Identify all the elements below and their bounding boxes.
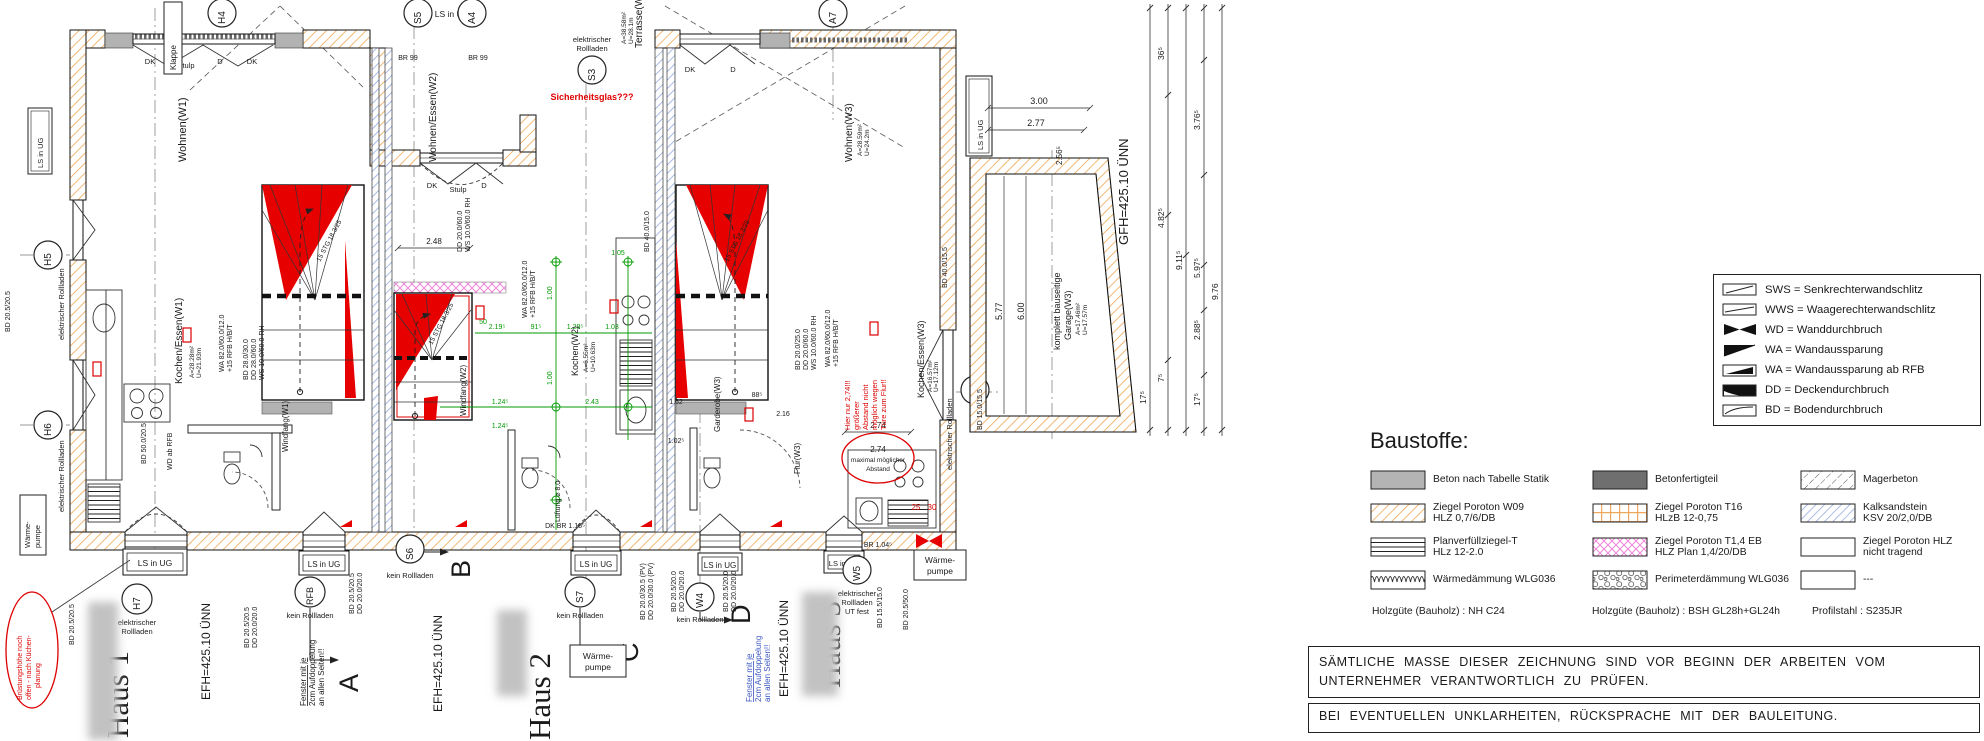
svg-text:RFB: RFB [305, 587, 315, 605]
svg-text:BD 15.5/15.0: BD 15.5/15.0 [877, 587, 884, 628]
poroton-hlz-swatch [1800, 537, 1856, 557]
garage-label: Garage(W3) [1063, 290, 1073, 340]
garage: LS in UG 3.00 2.77 2.56⁵ 5.77 6.00 GFH=4… [966, 76, 1136, 432]
svg-text:Rollladen: Rollladen [121, 627, 152, 636]
svg-text:DD 20.0/20.0: DD 20.0/20.0 [252, 607, 259, 648]
material-label: --- [1863, 574, 1873, 585]
holzguete-note: Holzgüte (Bauholz) : NH C24 [1372, 606, 1505, 617]
material-row: Perimeterdämmung WLG036 [1592, 570, 1789, 590]
material-label: Beton nach Tabelle Statik [1433, 474, 1549, 485]
ls-box-label: LS in UG [976, 119, 985, 150]
svg-text:17⁵: 17⁵ [1192, 393, 1202, 406]
legend-row: WD = Wanddurchbruch [1722, 322, 1980, 337]
svg-text:offen - nach Küchen-: offen - nach Küchen- [26, 634, 33, 700]
legend-label: WD = Wanddurchbruch [1765, 324, 1882, 336]
kalksandstein-swatch [1800, 503, 1856, 523]
room-area: U=10.63m [590, 342, 597, 372]
svg-text:2.88⁵: 2.88⁵ [1192, 320, 1202, 340]
room-label: Kochen/Essen(W3) [916, 320, 926, 398]
sws-icon [1722, 282, 1758, 297]
dd-icon [1722, 383, 1758, 398]
note-line: BEI EVENTUELLEN UNKLARHEITEN, RÜCKSPRACH… [1319, 709, 1838, 723]
svg-text:S7: S7 [575, 590, 586, 603]
room-label: Wohnen(W1) [177, 97, 189, 162]
material-label: Perimeterdämmung WLG036 [1655, 574, 1789, 585]
svg-text:Türe zum Flur!!: Türe zum Flur!! [879, 379, 888, 430]
garage-label: komplett bauseitige [1052, 272, 1062, 350]
ls-boxes [123, 549, 864, 575]
garage-gfh: GFH=425.10 ÜNN [1116, 138, 1131, 245]
code-label: +15 RFB H/B/T [530, 270, 537, 318]
room-label: Kochen(W2) [570, 326, 580, 376]
svg-text:BD 20.5/20.0: BD 20.5/20.0 [723, 571, 730, 612]
code-label: Lüftung ⌀ 8.0 [555, 481, 562, 522]
room-area: U=24.2m [864, 129, 871, 156]
haus1-stair: 15 STG 18.3/25 [262, 185, 364, 414]
svg-text:A4: A4 [467, 11, 478, 24]
dim-label: 5.77 [994, 302, 1004, 320]
svg-text:pumpe: pumpe [33, 525, 42, 548]
garage-area: A=17.46m² [1075, 302, 1082, 335]
poroton-t14eb-swatch [1592, 537, 1648, 557]
waermedaemmung-swatch [1370, 570, 1426, 590]
cloud-text: 2.74 [870, 445, 886, 454]
wa-icon [1722, 343, 1758, 358]
poroton-w09-swatch [1370, 503, 1426, 523]
svg-text:9.76: 9.76 [1210, 283, 1220, 300]
svg-text:elektrischer Rollladen: elektrischer Rollladen [57, 440, 66, 512]
room-area: U=17.12m [933, 362, 940, 392]
poroton-t16-swatch [1592, 503, 1648, 523]
code-label: BD 40.0/15.5 [942, 247, 949, 288]
svg-text:EFH=425.10 ÜNN: EFH=425.10 ÜNN [199, 603, 213, 700]
material-row: Beton nach Tabelle Statik [1370, 470, 1549, 490]
material-label: Betonfertigteil [1655, 474, 1718, 485]
svg-text:DD 20.0/20.0: DD 20.0/20.0 [731, 571, 738, 612]
material-label: KalksandsteinKSV 20/2,0/DB [1863, 502, 1932, 524]
bd-icon [1722, 403, 1758, 418]
window-label: D [217, 57, 223, 66]
room-area: A=6.55m² [583, 343, 590, 372]
dim-label: 1.62 [669, 399, 683, 406]
svg-text:H6: H6 [43, 423, 54, 436]
material-row: --- [1800, 570, 1873, 590]
window-label: Stulp [449, 185, 466, 194]
svg-text:BD 20.5/20.5: BD 20.5/20.5 [69, 604, 76, 645]
svg-text:A: A [334, 674, 364, 692]
svg-text:17⁵: 17⁵ [1138, 391, 1148, 404]
svg-text:Abstand nicht: Abstand nicht [861, 384, 870, 430]
dim-label: 6.00 [1016, 302, 1026, 320]
code-label: BD 50.0/20.5 [141, 423, 148, 464]
code-label: WA 82.0/60.0/12.0 [522, 261, 529, 318]
material-label: Wärmedämmung WLG036 [1433, 574, 1555, 585]
svg-text:pumpe: pumpe [585, 662, 611, 672]
material-row: Ziegel Poroton HLZnicht tragend [1800, 536, 1952, 558]
room-label: Kochen/Essen(W1) [174, 298, 185, 384]
svg-text:UT fest: UT fest [845, 607, 870, 616]
material-label: Ziegel Poroton W09HLZ 0,7/6/DB [1433, 502, 1524, 524]
fenster-note-2: Fenster mit je 2cm Aufdoppelung an allen… [745, 636, 772, 702]
dim-label: 2.48 [426, 237, 442, 246]
legend-label: DD = Deckendurchbruch [1765, 384, 1889, 396]
code-label: BD 40.0/15.0 [644, 211, 651, 252]
svg-text:1.05: 1.05 [611, 250, 625, 257]
legend-label: SWS = Senkrechterwandschlitz [1765, 284, 1923, 296]
green-dims: 2.19⁵ 91⁵ 1.28⁵ 1.03 50 1.00 1.00 1.24⁵ … [479, 250, 625, 430]
dim-label: 88⁵ [752, 392, 763, 399]
svg-text:an allen Seiten!!: an allen Seiten!! [317, 649, 326, 706]
cloud-text: Abstand [866, 466, 890, 473]
room-area: A=28.28m² [189, 345, 196, 378]
svg-text:BD 20.0/30.5 (PV): BD 20.0/30.5 (PV) [640, 563, 647, 620]
empty-swatch [1800, 570, 1856, 590]
code-label: DD 20.0/60.0 [803, 329, 810, 370]
room-label: Wohnen/Essen(W2) [428, 73, 439, 162]
svg-text:LS in UG: LS in UG [308, 560, 340, 569]
svg-text:BD 20.5/20.5: BD 20.5/20.5 [349, 573, 356, 614]
svg-text:LS in UG: LS in UG [580, 560, 612, 569]
symbol-legend: SWS = Senkrechterwandschlitz WWS = Waage… [1713, 274, 1981, 426]
svg-text:elektrischer Rollladen: elektrischer Rollladen [57, 268, 66, 340]
svg-text:91⁵: 91⁵ [531, 324, 542, 331]
svg-text:Wärme-: Wärme- [925, 555, 955, 565]
code-label: +15 RFB H/B/T [227, 324, 234, 372]
svg-text:4.82⁵: 4.82⁵ [1156, 208, 1166, 228]
code-label: BD 20.0/25.0 [795, 329, 802, 370]
svg-text:Rollladen: Rollladen [576, 44, 607, 53]
svg-text:1.00: 1.00 [547, 286, 554, 300]
haus1-interior [86, 290, 292, 522]
wws-icon [1722, 302, 1758, 317]
material-row: Magerbeton [1800, 470, 1918, 490]
svg-text:elektrischer: elektrischer [838, 589, 877, 598]
room-area: U=28.1m [628, 17, 635, 44]
material-row: Wärmedämmung WLG036 [1370, 570, 1555, 590]
code-label: WS 10.0/60.0 RH [259, 326, 266, 380]
window-label: DK [145, 57, 155, 66]
window-label: BR 1.04⁵ [864, 542, 892, 549]
svg-text:36⁵: 36⁵ [1156, 47, 1166, 60]
code-label: BD 20.5/20.5 [5, 291, 12, 332]
red-dim: 30 [928, 503, 937, 512]
svg-text:elektrischer: elektrischer [573, 35, 612, 44]
left-edge-items [28, 2, 182, 174]
room-area: U=21.93m [196, 348, 203, 378]
svg-text:planung: planung [35, 663, 42, 688]
code-label: WD ab RFB [167, 432, 174, 470]
legend-row: WWS = Waagerechterwandschlitz [1722, 302, 1980, 317]
svg-text:pumpe: pumpe [927, 566, 953, 576]
svg-text:7⁵: 7⁵ [1156, 374, 1166, 382]
general-note: SÄMTLICHE MASSE DIESER ZEICHNUNG SIND VO… [1308, 646, 1980, 698]
klappe-label: Klappe [169, 45, 178, 70]
magerbeton-swatch [1800, 470, 1856, 490]
wd-icon [1722, 322, 1758, 337]
betonfertigteil-swatch [1592, 470, 1648, 490]
svg-text:2cm Aufdoppelung: 2cm Aufdoppelung [308, 640, 317, 706]
beton-swatch [1370, 470, 1426, 490]
svg-text:Wärme-: Wärme- [583, 651, 613, 661]
red-note: Sicherheitsglas??? [550, 92, 633, 102]
svg-text:2cm Aufdoppelung: 2cm Aufdoppelung [754, 636, 763, 702]
t14eb-wall-band [394, 282, 506, 293]
svg-text:9.11⁵: 9.11⁵ [1174, 251, 1184, 270]
window-label: D [730, 65, 736, 74]
svg-text:H7: H7 [132, 597, 143, 610]
svg-text:1.03: 1.03 [605, 324, 619, 331]
svg-text:EFH=425.10 ÜNN: EFH=425.10 ÜNN [777, 600, 791, 697]
svg-text:Brüstungshöhe noch: Brüstungshöhe noch [17, 636, 24, 700]
svg-text:elektrischer: elektrischer [118, 618, 157, 627]
note-line: UNTERNEHMER VERANTWORTLICH ZU PRÜFEN. [1319, 672, 1969, 691]
legend-row: DD = Deckendurchbruch [1722, 383, 1980, 398]
garage-area: U=17.57m [1082, 305, 1089, 335]
room-area: A=38.58m² [621, 11, 628, 44]
floor-plan: DK Stulp D DK DK Stulp D BR 99 BR 99 DK … [0, 0, 1270, 741]
window-label: BR 99 [398, 55, 418, 62]
legend-label: WA = Wandaussparung ab RFB [1765, 364, 1925, 376]
svg-text:W5: W5 [852, 566, 863, 581]
cloud-text: maximal möglicher [851, 457, 906, 464]
material-row: KalksandsteinKSV 20/2,0/DB [1800, 502, 1932, 524]
material-row: Ziegel Poroton T1,4 EBHLZ Plan 1,4/20/DB [1592, 536, 1762, 558]
window-label: DK [247, 57, 257, 66]
room-area: A=28.59m² [857, 123, 864, 156]
svg-text:EFH=425.10 ÜNN: EFH=425.10 ÜNN [431, 615, 445, 712]
svg-text:Fenster mit je: Fenster mit je [299, 657, 308, 706]
code-label: WA 82.0/60.0/12.0 [825, 310, 832, 367]
window-label: D [481, 181, 487, 190]
svg-text:2.43: 2.43 [585, 399, 599, 406]
baustoffe-heading: Baustoffe: [1370, 428, 1469, 454]
code-annotations: WA 82.0/60.0/12.0 +15 RFB H/B/T BD 28.0/… [5, 198, 949, 522]
svg-text:W4: W4 [695, 593, 706, 608]
svg-text:LS in UG: LS in UG [138, 558, 173, 568]
window-label: DK BR 1.16⁵ [545, 523, 585, 530]
code-label: WS 10.0/60.0 RH [811, 316, 818, 370]
legend-label: BD = Bodendurchbruch [1765, 404, 1883, 416]
profilstahl-note: Profilstahl : S235JR [1812, 606, 1902, 617]
dim-label: 2.77 [1027, 118, 1045, 128]
material-row: Ziegel Poroton W09HLZ 0,7/6/DB [1370, 502, 1524, 524]
svg-text:5.97⁵: 5.97⁵ [1192, 258, 1202, 278]
wa-rfb-icon [1722, 363, 1758, 378]
svg-text:H4: H4 [217, 11, 228, 24]
red-dim: 25 [912, 503, 921, 512]
cloud-note: Brüstungshöhe noch offen - nach Küchen- … [17, 634, 42, 700]
material-row: Betonfertigteil [1592, 470, 1718, 490]
dim-label: 2.56⁵ [1055, 146, 1064, 165]
roof-dashed-lines [190, 6, 905, 148]
svg-text:BD 20.5/20.0: BD 20.5/20.0 [671, 571, 678, 612]
room-label: Flur(W3) [793, 443, 802, 474]
legend-row: SWS = Senkrechterwandschlitz [1722, 282, 1980, 297]
svg-text:S3: S3 [587, 68, 598, 81]
legend-row: WA = Wandaussparung ab RFB [1722, 363, 1980, 378]
svg-text:1.24⁵: 1.24⁵ [492, 399, 509, 406]
ls-box-label: LS in UG [36, 137, 45, 168]
note-line: SÄMTLICHE MASSE DIESER ZEICHNUNG SIND VO… [1319, 653, 1969, 672]
drawing-sheet: DK Stulp D DK DK Stulp D BR 99 BR 99 DK … [0, 0, 1984, 741]
svg-text:B: B [446, 560, 476, 578]
material-label: Ziegel Poroton T1,4 EBHLZ Plan 1,4/20/DB [1655, 536, 1762, 558]
room-label: Wohnen(W3) [844, 103, 855, 162]
dim-label: 1.02⁵ [668, 438, 685, 445]
window-label: DK [685, 65, 695, 74]
holzguete-note: Holzgüte (Bauholz) : BSH GL28h+GL24h [1592, 606, 1780, 617]
svg-text:DD 20.0/30.0 (PV): DD 20.0/30.0 (PV) [648, 563, 655, 620]
svg-text:Fenster mit je: Fenster mit je [745, 653, 754, 702]
code-label: DD 20.0/60.0 [457, 211, 464, 252]
svg-text:1.00: 1.00 [547, 371, 554, 385]
material-label: Ziegel Poroton T16HLzB 12-0,75 [1655, 502, 1742, 524]
svg-text:H5: H5 [43, 253, 54, 266]
svg-text:DD 20.0/20.0: DD 20.0/20.0 [679, 571, 686, 612]
svg-text:Haus 2: Haus 2 [522, 653, 557, 740]
material-row: Ziegel Poroton T16HLzB 12-0,75 [1592, 502, 1742, 524]
legend-label: WA = Wandaussparung [1765, 344, 1883, 356]
code-label: WS 10.0/60.0 RH [465, 198, 472, 252]
window-labels: DK Stulp D DK DK Stulp D BR 99 BR 99 DK … [145, 55, 892, 549]
svg-text:kein Rollladen: kein Rollladen [386, 571, 433, 580]
svg-text:S5: S5 [413, 11, 424, 24]
planverfuellziegel-swatch [1370, 537, 1426, 557]
dim-label: 2.16 [776, 411, 790, 418]
svg-text:elektrischer Rollladen: elektrischer Rollladen [945, 398, 954, 470]
svg-text:50: 50 [479, 319, 487, 326]
svg-text:Hier nur 2,74!!!: Hier nur 2,74!!! [843, 380, 852, 430]
material-label: Planverfüllziegel-THLz 12-2.0 [1433, 536, 1518, 558]
code-label: +15 RFB H/B/T [833, 319, 840, 367]
svg-text:möglich wegen: möglich wegen [870, 380, 879, 430]
fenster-note-1: Fenster mit je 2cm Aufdoppelung an allen… [299, 640, 326, 706]
legend-row: BD = Bodendurchbruch [1722, 403, 1980, 418]
bauleitung-note: BEI EVENTUELLEN UNKLARHEITEN, RÜCKSPRACH… [1308, 703, 1980, 733]
code-label: DD 28.0/60.0 [251, 339, 258, 380]
svg-text:größerer: größerer [852, 401, 861, 430]
svg-text:A7: A7 [828, 11, 839, 24]
room-label: Windfang(W1) [281, 401, 290, 452]
window-label: DK [427, 181, 437, 190]
code-label: BD 15.0/15.5 [977, 389, 984, 430]
svg-text:1.24⁵: 1.24⁵ [492, 423, 509, 430]
svg-text:S6: S6 [405, 547, 416, 560]
red-warning: Hier nur 2,74!!! größerer Abstand nicht … [843, 379, 888, 430]
legend-row: WA = Wandaussparung [1722, 343, 1980, 358]
legend-label: WWS = Waagerechterwandschlitz [1765, 304, 1936, 316]
window-label: BR 99 [468, 55, 488, 62]
code-label: WA 82.0/60.0/12.0 [219, 315, 226, 372]
svg-text:2.19⁵: 2.19⁵ [489, 324, 506, 331]
svg-text:an allen Seiten!!: an allen Seiten!! [763, 645, 772, 702]
code-label: BD 28.0/30.0 [243, 339, 250, 380]
svg-text:Wärme-: Wärme- [23, 521, 32, 548]
material-row: Planverfüllziegel-THLz 12-2.0 [1370, 536, 1518, 558]
svg-text:BD 20.5/20.5: BD 20.5/20.5 [244, 607, 251, 648]
room-label: Terrasse(W2) [634, 0, 645, 48]
material-label: Ziegel Poroton HLZnicht tragend [1863, 536, 1952, 558]
room-label: Windfang(W2) [459, 365, 468, 416]
svg-text:DD 20.0/20.0: DD 20.0/20.0 [357, 573, 364, 614]
svg-text:LS in UG: LS in UG [704, 561, 736, 570]
perimeterdaemmung-swatch [1592, 570, 1648, 590]
svg-text:BD 20.5/50.0: BD 20.5/50.0 [903, 589, 910, 630]
svg-text:3.76⁵: 3.76⁵ [1192, 110, 1202, 130]
room-label: Garderobe(W3) [713, 376, 722, 432]
dim-label: 3.00 [1030, 96, 1048, 106]
material-label: Magerbeton [1863, 474, 1918, 485]
